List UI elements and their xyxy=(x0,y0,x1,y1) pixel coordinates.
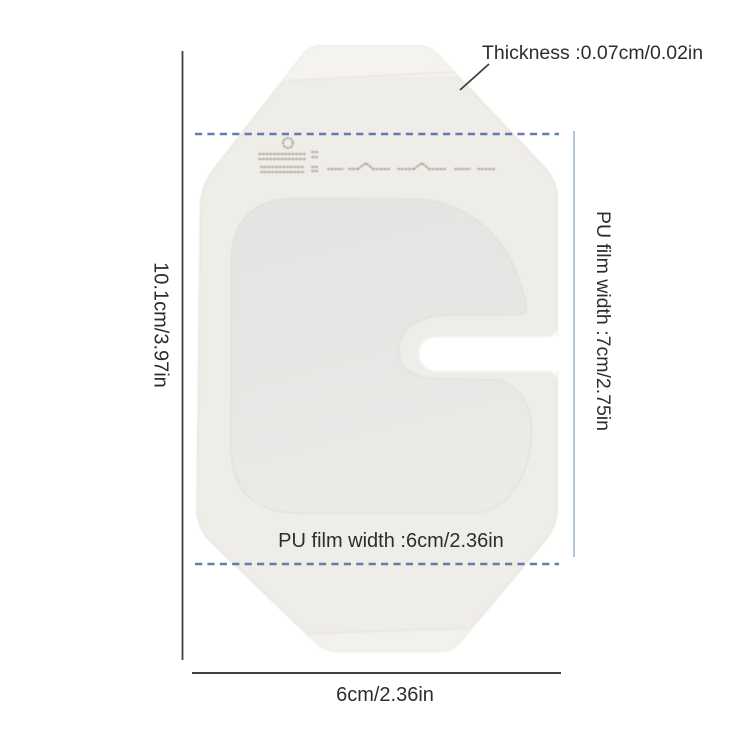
svg-text:PU film width :7cm/2.75in: PU film width :7cm/2.75in xyxy=(592,211,614,431)
svg-text:10.1cm/3.97in: 10.1cm/3.97in xyxy=(150,262,172,388)
svg-text:Thickness :0.07cm/0.02in: Thickness :0.07cm/0.02in xyxy=(482,42,703,64)
svg-text:6cm/2.36in: 6cm/2.36in xyxy=(336,684,434,706)
svg-text:PU film width :6cm/2.36in: PU film width :6cm/2.36in xyxy=(278,530,504,552)
